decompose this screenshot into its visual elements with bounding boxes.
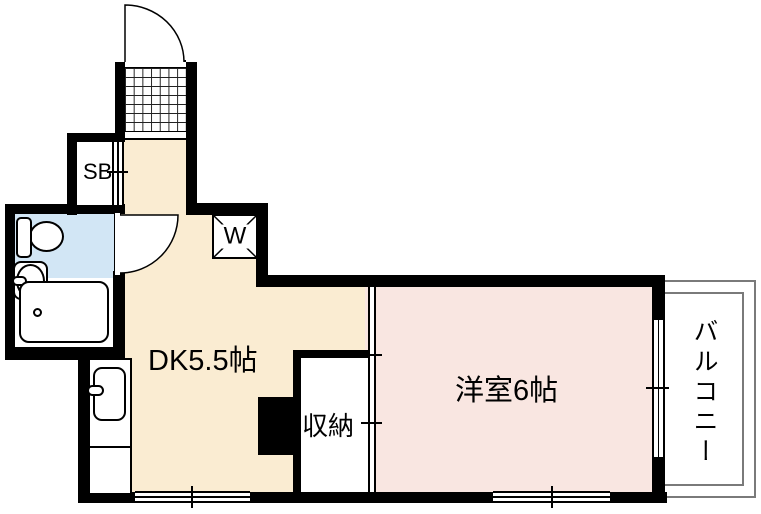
- dk-room-label: DK5.5帖: [148, 347, 258, 376]
- wall-bath-right: [113, 271, 125, 351]
- kitchen-faucet: [87, 385, 104, 396]
- wall-western-top: [256, 275, 665, 287]
- storage-label: 収納: [302, 413, 354, 439]
- genkan-tile-grid: [125, 68, 186, 131]
- shoe-box-door: [112, 142, 124, 205]
- washing-machine-box: W: [212, 214, 258, 259]
- entrance-door-arc: [118, 2, 190, 64]
- partition-dk-western: [368, 287, 376, 492]
- window-tick-western: [551, 486, 553, 508]
- toilet-tank: [16, 217, 32, 258]
- wall-storage-top: [293, 350, 368, 358]
- kitchen-counter-divider: [89, 446, 131, 448]
- dk-floor-upper: [120, 131, 190, 216]
- pillar: [258, 397, 293, 455]
- bathtub-drain: [33, 308, 42, 317]
- window-tick-dk: [191, 486, 193, 508]
- window-tick-right: [646, 387, 669, 389]
- wall-storage-left: [293, 350, 301, 493]
- wall-entrance-left: [115, 62, 125, 133]
- floor-plan: W DK5.5帖 洋室6帖 収納 SB バルコニー: [0, 0, 761, 514]
- partition-tick-upper: [361, 354, 382, 356]
- shoe-box-label: SB: [83, 161, 112, 183]
- wall-dk-left: [78, 347, 88, 503]
- washing-machine-label: W: [222, 224, 249, 248]
- wall-right-upper: [652, 287, 665, 322]
- wall-entrance-right: [186, 62, 197, 215]
- western-room-label: 洋室6帖: [455, 377, 558, 406]
- partition-tick-lower: [361, 422, 382, 424]
- toilet-bowl: [29, 221, 64, 252]
- wall-bath-top: [5, 204, 125, 214]
- bathroom-door-arc: [118, 213, 182, 277]
- balcony-label: バルコニー: [691, 318, 716, 468]
- genkan-step: [125, 131, 186, 140]
- wall-sb-left: [67, 133, 77, 215]
